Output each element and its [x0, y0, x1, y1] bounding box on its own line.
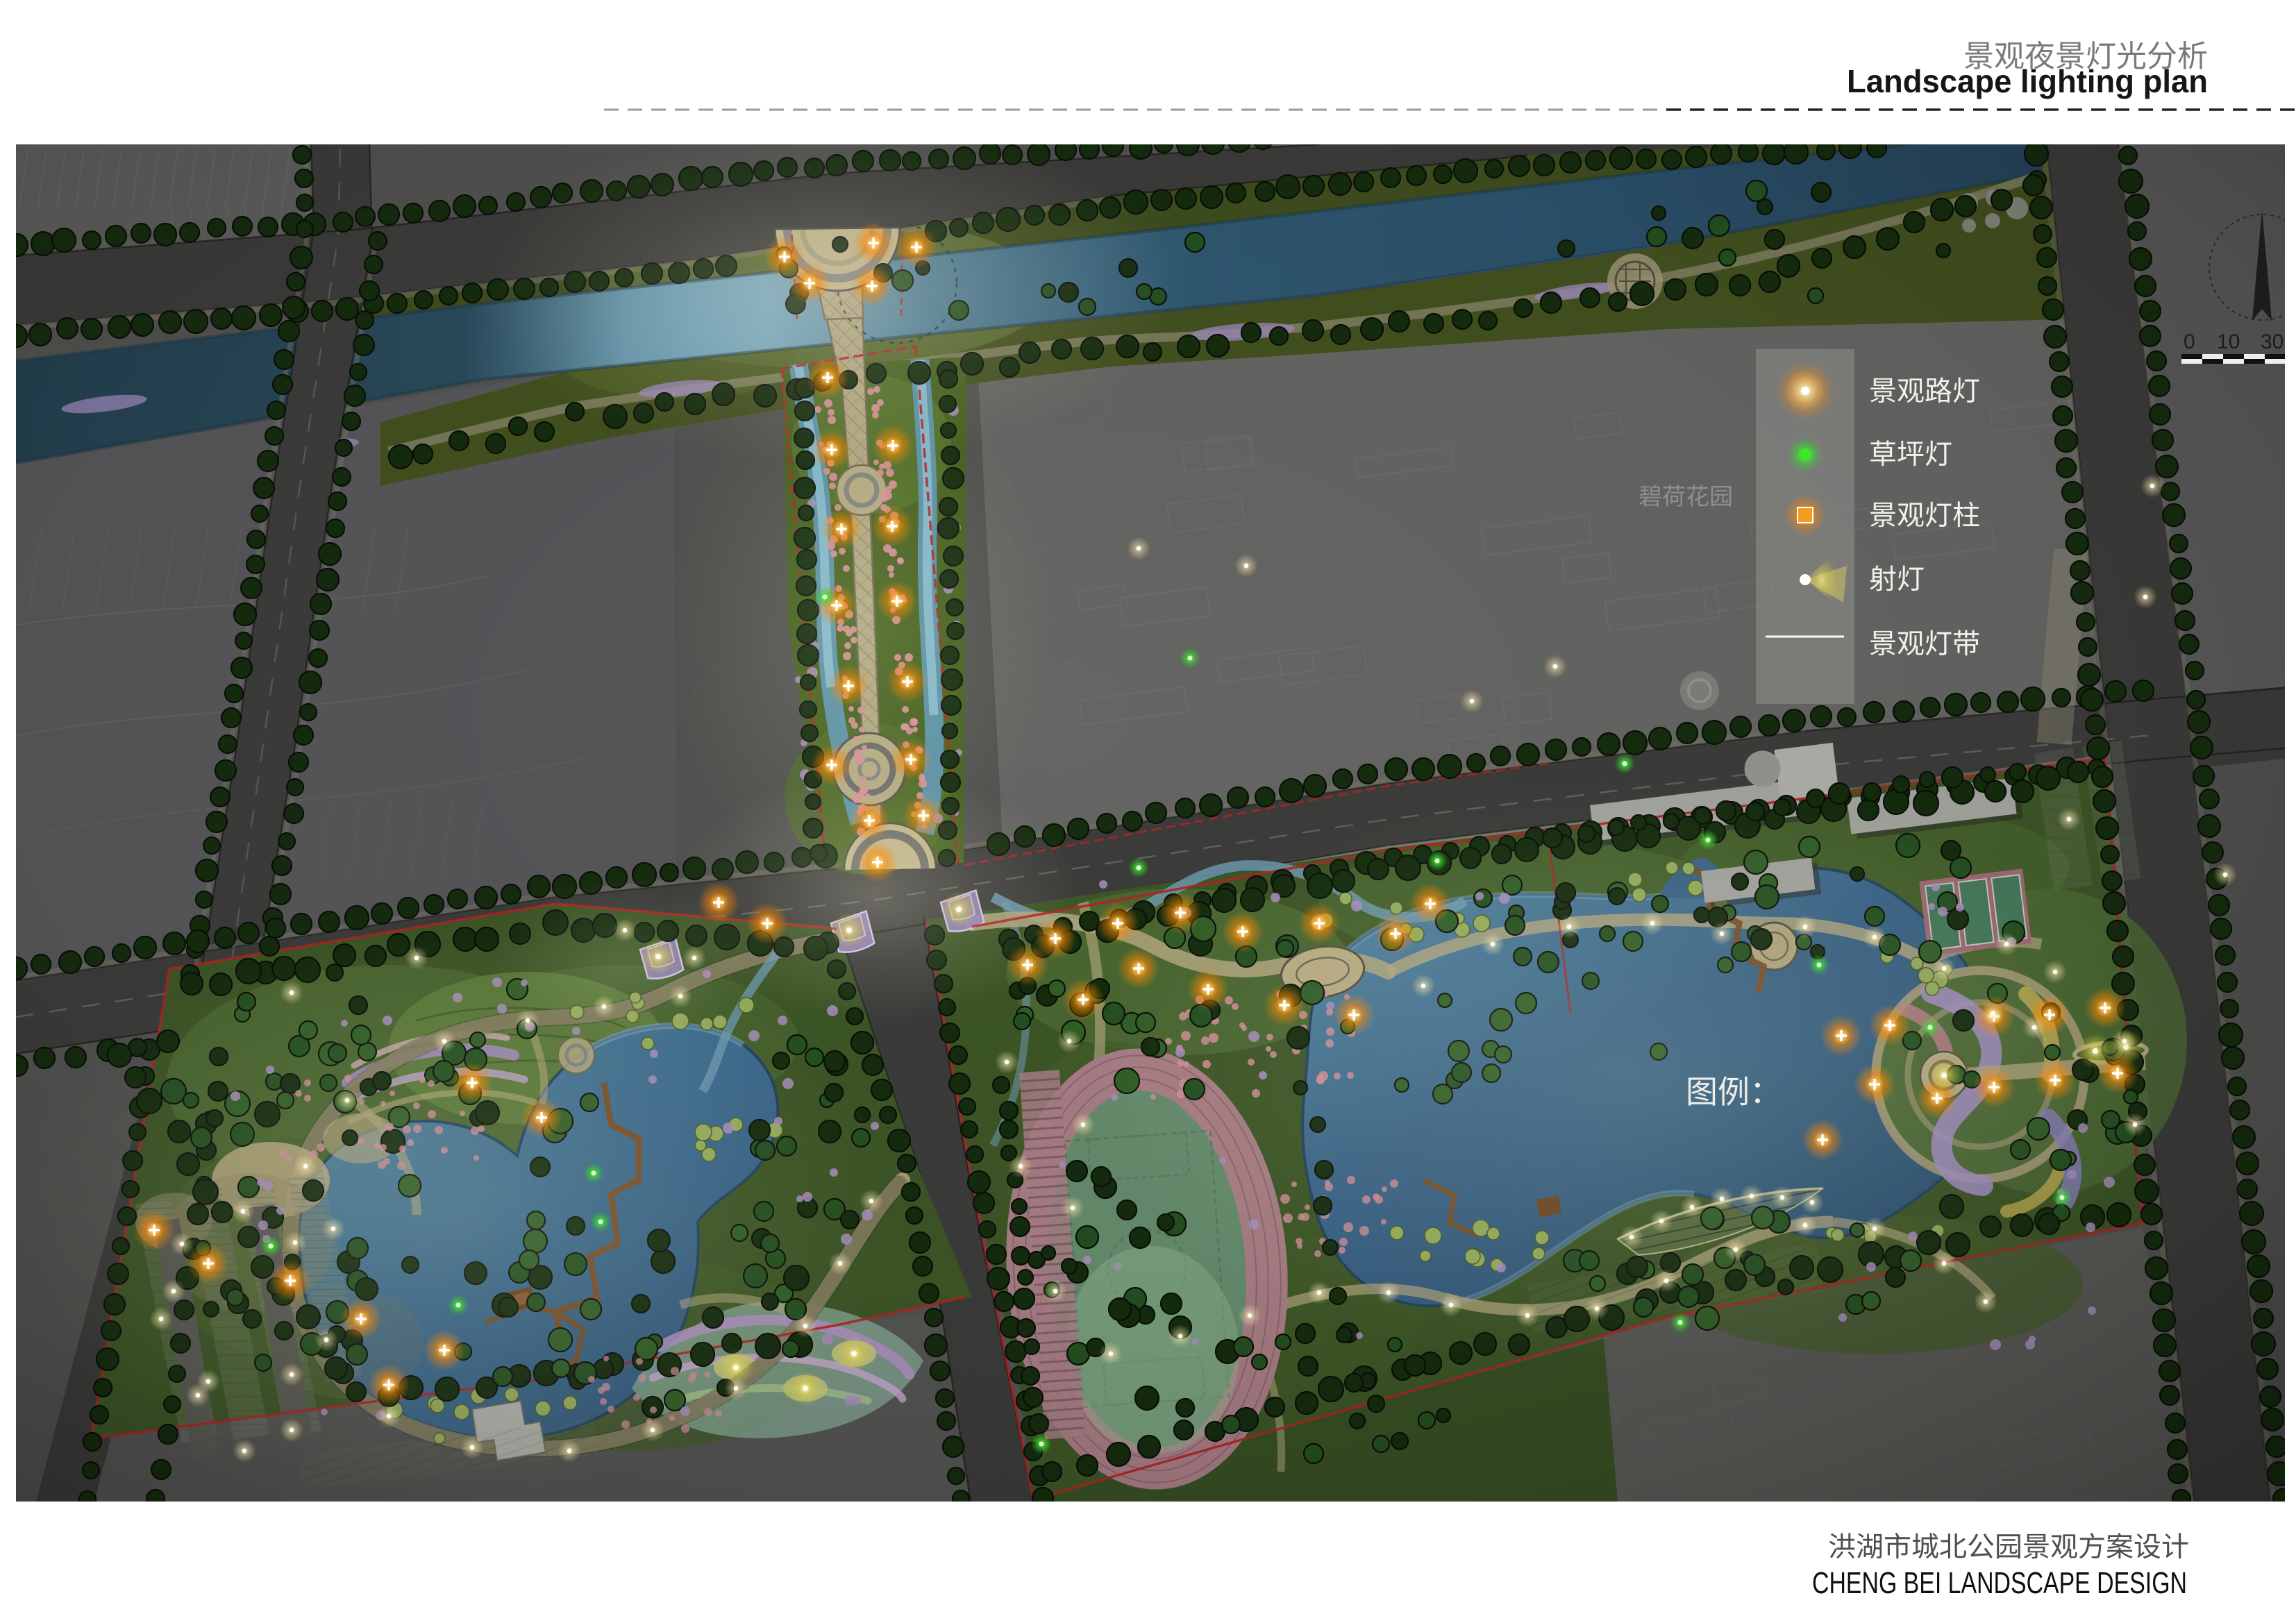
svg-text:30: 30: [2261, 330, 2284, 353]
svg-text:Landscape lighting plan: Landscape lighting plan: [1847, 63, 2208, 99]
svg-text:0: 0: [2184, 330, 2195, 353]
svg-text:CHENG BEI LANDSCAPE DESIGN: CHENG BEI LANDSCAPE DESIGN: [1812, 1566, 2187, 1600]
svg-text:10: 10: [2217, 330, 2240, 353]
